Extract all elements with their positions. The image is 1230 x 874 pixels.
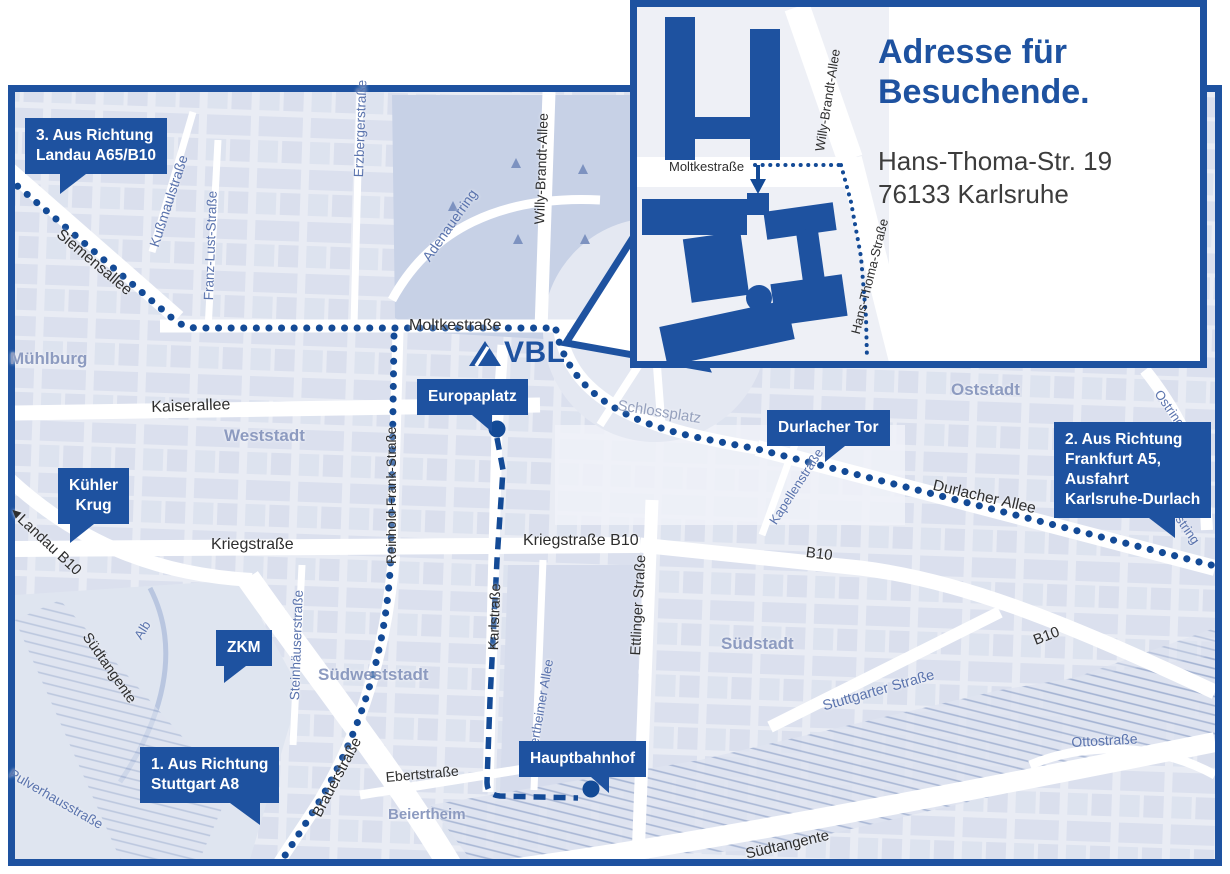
callout-landau-line1: 3. Aus Richtung: [36, 126, 156, 146]
district-label-weststadt: Weststadt: [224, 426, 305, 446]
vbl-triangle-icon: [468, 338, 502, 368]
vbl-logo: VBL: [468, 338, 566, 368]
callout-landau-line2: Landau A65/B10: [36, 146, 156, 166]
callout-frankfurt: 2. Aus Richtung Frankfurt A5, Ausfahrt K…: [1054, 422, 1211, 518]
district-label-muehlburg: Mühlburg: [10, 349, 87, 369]
callout-kuehler-line1: Kühler: [69, 476, 118, 496]
inset-title: Adresse für Besuchende.: [878, 32, 1090, 112]
callout-frankfurt-line4: Karlsruhe-Durlach: [1065, 490, 1200, 510]
district-label-beiertheim: Beiertheim: [388, 806, 466, 823]
inset-title-line1: Adresse für: [878, 32, 1090, 72]
inset-title-line2: Besuchende.: [878, 72, 1090, 112]
district-label-oststadt: Oststadt: [951, 380, 1020, 400]
callout-landau: 3. Aus Richtung Landau A65/B10: [25, 118, 167, 174]
karlsruhe-directions-map: { "colors":{ "brand_blue":"#1e52a0", "ro…: [0, 0, 1230, 874]
callout-stuttgart-line1: 1. Aus Richtung: [151, 755, 268, 775]
vbl-logo-text: VBL: [504, 338, 566, 368]
street-label-kriegstrasse-b10: Kriegstraße B10: [523, 532, 639, 550]
street-label-karlstrasse: Karlstraße: [486, 583, 504, 650]
callout-frankfurt-line3: Ausfahrt: [1065, 470, 1200, 490]
callout-frankfurt-line2: Frankfurt A5,: [1065, 450, 1200, 470]
district-label-suedweststadt: Südweststadt: [318, 665, 429, 685]
inset-address: Hans-Thoma-Str. 19 76133 Karlsruhe: [878, 145, 1112, 211]
callout-europaplatz: Europaplatz: [417, 379, 528, 415]
callout-stuttgart-line2: Stuttgart A8: [151, 775, 268, 795]
visitor-address-inset: Moltkestraße Willy-Brandt-Allee Hans-Tho…: [630, 0, 1207, 368]
street-label-kriegstrasse: Kriegstraße: [211, 536, 294, 554]
street-label-moltkestrasse: Moltkestraße: [409, 317, 501, 335]
inset-address-line1: Hans-Thoma-Str. 19: [878, 145, 1112, 178]
callout-kuehler-krug: Kühler Krug: [58, 468, 129, 524]
inset-address-line2: 76133 Karlsruhe: [878, 178, 1112, 211]
callout-kuehler-line2: Krug: [69, 496, 118, 516]
callout-zkm: ZKM: [216, 630, 272, 666]
street-label-kaiserallee: Kaiserallee: [151, 396, 231, 417]
street-label-reinhold-frank-strasse: Reinhold-Frank-Straße: [384, 427, 399, 564]
inset-street-label-moltkestrasse: Moltkestraße: [669, 159, 744, 174]
district-label-suedstadt: Südstadt: [721, 634, 794, 654]
callout-hauptbahnhof: Hauptbahnhof: [519, 741, 646, 777]
callout-stuttgart: 1. Aus Richtung Stuttgart A8: [140, 747, 279, 803]
callout-durlacher-tor: Durlacher Tor: [767, 410, 890, 446]
callout-frankfurt-line1: 2. Aus Richtung: [1065, 430, 1200, 450]
street-label-b10-mid: B10: [805, 544, 834, 564]
